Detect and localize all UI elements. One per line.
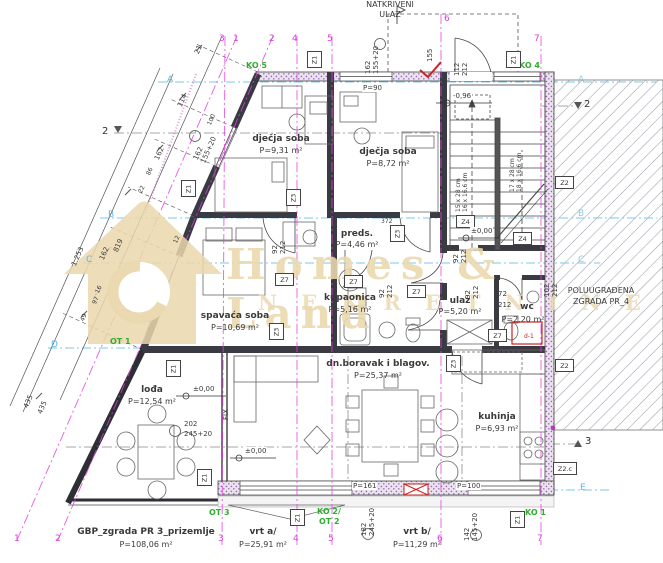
dim-loda-245: 245+20 [184, 430, 212, 438]
room-name-boravak: dn.boravak i blagov. [326, 359, 429, 369]
axis-letter-b: B [108, 210, 114, 220]
axis-bot-2: 2 [55, 534, 61, 544]
dim-vrt: 182 245+20 [360, 508, 376, 536]
room-name-kuhinja: kuhinja [478, 412, 515, 422]
axis-bot-7: 7 [537, 534, 543, 544]
marker-z7-b: Z7 [344, 275, 363, 288]
room-area-djecja2: P=8,72 m² [367, 159, 410, 168]
room-name-kupaonica: kupaonica [324, 293, 376, 303]
axis-letter-c2: C [578, 255, 584, 265]
label-ko2: KO 2/ [317, 507, 341, 516]
level-zero-b: ±0,00 [192, 385, 215, 393]
axis-bot-5: 5 [328, 534, 334, 544]
dim-p161: P=161 [352, 482, 377, 490]
marker-z2-b: Z2 [555, 359, 574, 372]
level-zero-a: ±0,00 [470, 227, 493, 235]
room-name-loda: lođa [141, 385, 163, 395]
axis-top-4: 4 [292, 34, 298, 44]
axis-letter-e: E [580, 483, 586, 493]
axis-top-7: 7 [534, 34, 540, 44]
label-gbp: GBP_zgrada PR 3_prizemlje [77, 527, 215, 537]
dim-kuhinja-win: 142 145+20 [463, 513, 479, 541]
room-name-djecja1: dječja soba [252, 134, 309, 144]
room-name-preds: preds. [341, 229, 373, 239]
marker-z7-c: Z7 [407, 285, 426, 298]
stair-text-right: 17 x 28 cm 18 x 16,6 cm [510, 153, 524, 192]
axis-bot-6: 6 [437, 534, 443, 544]
label-ko5: KO 5 [246, 61, 267, 70]
marker-z3-b: Z3 [390, 225, 405, 242]
marker-z2c: Z2.c [553, 462, 577, 475]
dimension-rulers [10, 36, 258, 412]
level-minus-096: -0,96 [452, 92, 472, 100]
dim-loda-202: 202 [184, 420, 197, 428]
marker-z1-f: Z1 [290, 509, 305, 526]
label-gbp-area: P=108,06 m² [119, 540, 172, 549]
dim-door-c: 92 212 [452, 250, 468, 263]
axis-bot-3: 3 [218, 534, 224, 544]
floor-plan: Homes & Land NEKRETNINE dječja soba P=9,… [0, 0, 663, 563]
room-area-wc: P=2,20 m² [502, 315, 545, 324]
dim-p100: P=100 [456, 482, 481, 490]
room-area-kupaonica: P=5,16 m² [329, 305, 372, 314]
label-vrt-a-area: P=25,91 m² [239, 540, 287, 549]
marker-z1-e: Z1 [197, 469, 212, 486]
marker-z7-d: Z7 [488, 329, 507, 342]
marker-z1-b: Z1 [307, 51, 322, 68]
room-area-loda: P=12,54 m² [128, 397, 176, 406]
label-ko1: KO 1 [525, 508, 546, 517]
room-area-preds: P=4,46 m² [336, 240, 379, 249]
axis-top-5: 5 [327, 34, 333, 44]
room-name-spavaca: spavaća soba [201, 311, 269, 321]
marker-z1-c: Z1 [506, 51, 521, 68]
axis-top-6: 6 [444, 14, 450, 24]
marker-z1-g: Z1 [510, 511, 525, 528]
dim-door-e: 102 212 [543, 284, 559, 297]
axis-top-1: 1 [233, 34, 239, 44]
axis-letter-a: A [167, 75, 173, 85]
axis-top-3: 3 [219, 34, 225, 44]
dim-372: 372 [381, 219, 392, 226]
axis-bot-4: 4 [293, 534, 299, 544]
room-name-wc: wc [520, 302, 534, 312]
stair-text-left: 15 x 28 cm 16 x 16,6 cm [456, 173, 470, 212]
marker-z2-a: Z2 [555, 176, 574, 189]
room-area-djecja1: P=9,31 m² [260, 146, 303, 155]
section-3: 3 [585, 436, 591, 448]
marker-z1-d: Z1 [166, 360, 181, 377]
level-zero-c: ±0,00 [244, 447, 267, 455]
room-area-ulaz: P=5,20 m² [439, 307, 482, 316]
label-vrt-a: vrt a/ [249, 527, 276, 537]
label-vrt-b: vrt b/ [403, 527, 430, 537]
axis-letter-b2: B [578, 209, 584, 219]
neighbor-hatch [551, 80, 663, 430]
marker-z3-d: Z3 [446, 355, 461, 372]
dim-p90: P=90 [362, 84, 383, 92]
section-2-right: 2 [584, 99, 590, 111]
label-ot3: OT 3 [209, 508, 230, 517]
label-ko4: KO 4 [519, 61, 540, 70]
section-2-left: 2 [102, 126, 108, 138]
marker-z4-b: Z4 [513, 232, 532, 245]
axis-letter-d: D [51, 340, 58, 350]
marker-z7-a: Z7 [275, 273, 294, 286]
room-area-kuhinja: P=6,93 m² [476, 424, 519, 433]
axis-letter-c: C [86, 255, 92, 265]
dim-door-a: 92 212 [271, 241, 287, 254]
label-natkriveni: NATKRIVENI [366, 0, 414, 9]
dim-fix: FIX [222, 409, 230, 420]
dim-window-top: 162 155+20 [364, 46, 380, 74]
dim-entrance: 112 212 [453, 63, 469, 76]
dim-155: 155 [426, 49, 434, 62]
walls [68, 72, 554, 505]
label-ulaz-top: ULAZ [379, 10, 400, 19]
label-neighbor-2: ZGRADA PR_4 [573, 297, 629, 306]
marker-z3-a: Z3 [286, 189, 301, 206]
axis-top-2: 2 [269, 34, 275, 44]
marker-z1-a: Z1 [181, 180, 196, 197]
room-name-djecja2: dječja soba [359, 147, 416, 157]
label-ot2: OT 2 [319, 517, 340, 526]
axis-letter-a2: A [578, 75, 584, 85]
plan-drawing [0, 0, 663, 563]
label-neighbor-1: POLUUGRAĐENA [568, 286, 635, 295]
room-area-boravak: P=25,37 m² [354, 371, 402, 380]
label-ot1: OT 1 [110, 337, 131, 346]
dim-door-b: 92 212 [378, 285, 394, 298]
label-vrt-b-area: P=11,29 m² [393, 540, 441, 549]
label-d1: d-1 [524, 334, 534, 341]
axis-bot-1: 1 [14, 534, 20, 544]
dim-wc-72: 72 [498, 290, 507, 298]
dim-door-d: 92 212 [464, 286, 480, 299]
dim-wc-212: 212 [498, 301, 511, 309]
marker-z3-c: Z3 [269, 323, 284, 340]
room-area-spavaca: P=10,69 m² [211, 323, 259, 332]
